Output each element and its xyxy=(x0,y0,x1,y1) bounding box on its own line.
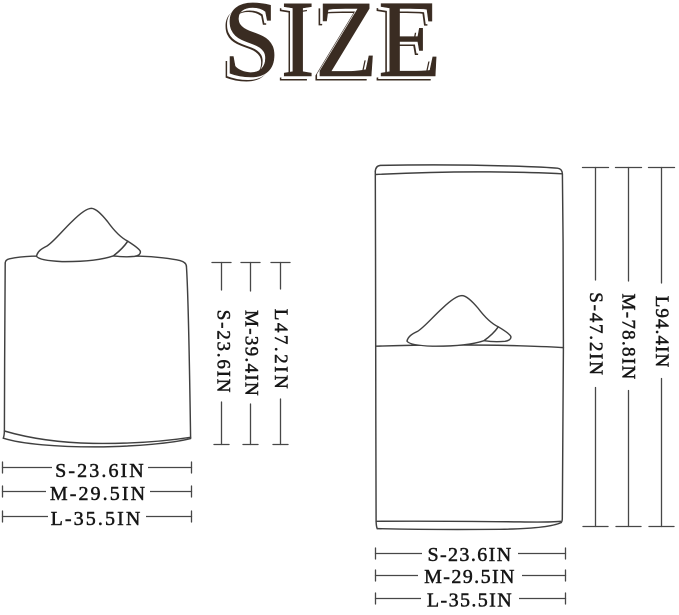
svg-text:L-35.5IN: L-35.5IN xyxy=(51,508,143,530)
svg-text:S-23.6IN: S-23.6IN xyxy=(213,310,234,395)
svg-text:S-23.6IN: S-23.6IN xyxy=(427,544,512,566)
svg-text:L-35.5IN: L-35.5IN xyxy=(427,589,513,611)
svg-text:L94.4IN: L94.4IN xyxy=(651,296,672,369)
svg-text:L47.2IN: L47.2IN xyxy=(270,309,291,391)
svg-text:S-23.6IN: S-23.6IN xyxy=(55,460,146,482)
svg-text:M-29.5IN: M-29.5IN xyxy=(50,483,147,505)
svg-text:S-47.2IN: S-47.2IN xyxy=(585,292,606,377)
svg-text:M-29.5IN: M-29.5IN xyxy=(424,566,516,588)
svg-text:M-78.8IN: M-78.8IN xyxy=(618,294,639,381)
svg-text:M-39.4IN: M-39.4IN xyxy=(241,310,262,397)
